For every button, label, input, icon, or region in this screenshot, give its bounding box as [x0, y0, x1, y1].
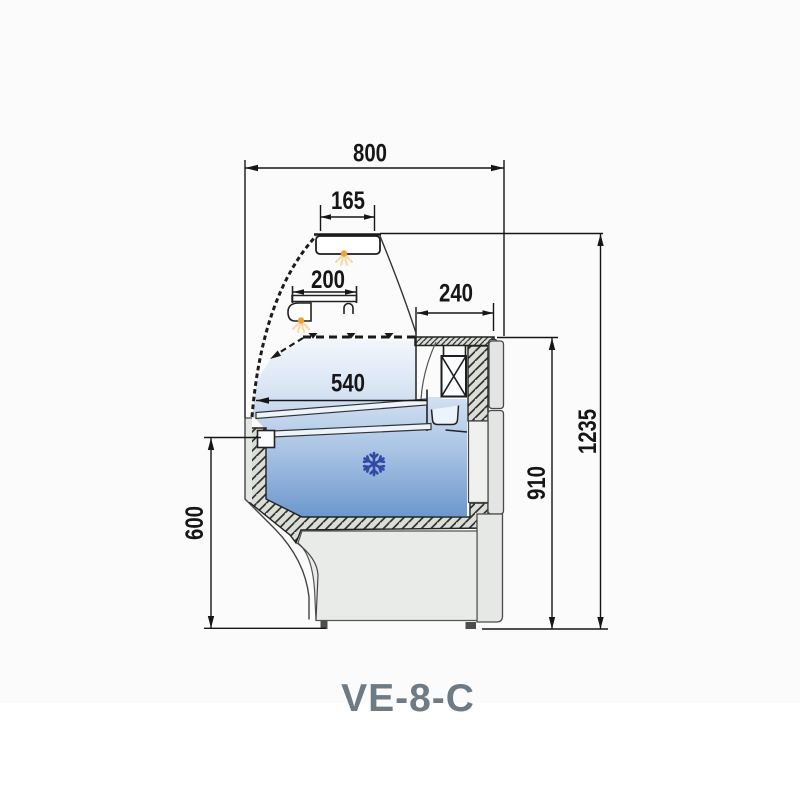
svg-text:800: 800: [353, 140, 387, 168]
svg-text:1235: 1235: [574, 409, 602, 454]
svg-text:240: 240: [439, 280, 473, 308]
svg-text:VE-8-C: VE-8-C: [341, 677, 475, 720]
svg-text:165: 165: [331, 187, 365, 215]
svg-text:910: 910: [523, 466, 551, 500]
svg-text:600: 600: [181, 506, 209, 540]
svg-text:200: 200: [311, 266, 345, 294]
svg-text:540: 540: [331, 370, 365, 398]
